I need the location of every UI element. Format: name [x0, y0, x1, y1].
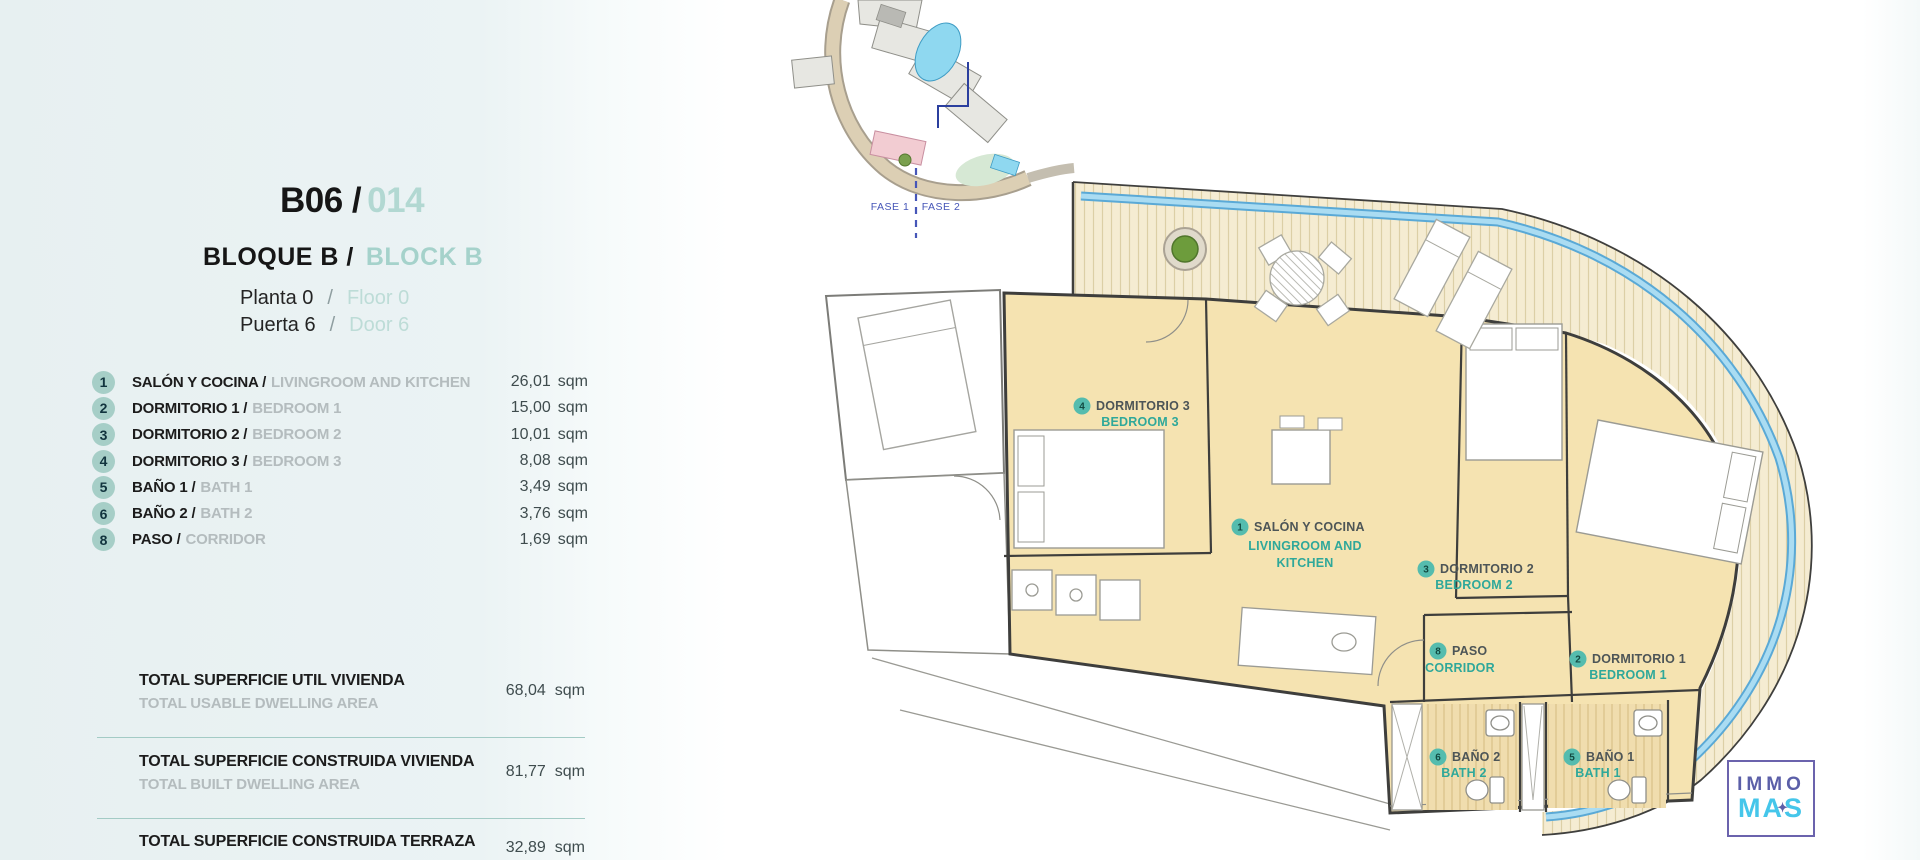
- room-row-bath2: 6 BAÑO 2 /BATH 2 3,76sqm: [92, 500, 588, 526]
- logo-text-mas: MAS: [1738, 793, 1804, 823]
- label-badge-number: 6: [1435, 753, 1441, 764]
- floor-separator: /: [327, 287, 333, 309]
- label-en: BEDROOM 2: [1435, 578, 1513, 592]
- room-area-unit: sqm: [558, 426, 588, 443]
- access-path-edge: [900, 710, 1390, 830]
- room-name-en: BEDROOM 1: [252, 400, 341, 417]
- entry-corridor: [846, 473, 1010, 654]
- label-badge-number: 2: [1575, 655, 1581, 666]
- total-title-en: TOTAL BUILT DWELLING AREA: [139, 776, 474, 793]
- label-en: BEDROOM 1: [1589, 668, 1667, 682]
- terrace-planter: [1164, 228, 1206, 270]
- room-name-en: LIVINGROOM AND KITCHEN: [271, 374, 470, 391]
- total-value: 32,89: [506, 839, 546, 856]
- bedroom3-bed: [1014, 430, 1164, 548]
- label-en: CORRIDOR: [1425, 661, 1495, 675]
- total-terrace-area: TOTAL SUPERFICIE CONSTRUIDA TERRAZA 32,8…: [97, 833, 585, 857]
- total-title-es: TOTAL SUPERFICIE UTIL VIVIENDA: [139, 672, 405, 690]
- total-title-es: TOTAL SUPERFICIE CONSTRUIDA TERRAZA: [139, 833, 475, 851]
- floor-line: Planta 0/Floor 0: [240, 287, 409, 310]
- room-area-value: 1,69: [520, 531, 551, 548]
- site-tree: [899, 154, 911, 166]
- room-area-value: 15,00: [511, 399, 551, 416]
- room-name-es: DORMITORIO 3 /: [132, 453, 247, 470]
- total-usable-area: TOTAL SUPERFICIE UTIL VIVIENDA TOTAL USA…: [97, 672, 585, 712]
- room-area-list: 1 SALÓN Y COCINA /LIVINGROOM AND KITCHEN…: [92, 369, 588, 553]
- room-row-bedroom1: 2 DORMITORIO 1 /BEDROOM 1 15,00sqm: [92, 395, 588, 421]
- door-es: Puerta 6: [240, 314, 316, 336]
- room-number-badge: 4: [92, 450, 115, 473]
- label-badge-number: 8: [1435, 647, 1441, 658]
- label-es: BAÑO 2: [1452, 749, 1500, 764]
- room-name-es: DORMITORIO 2 /: [132, 426, 247, 443]
- divider-line: [97, 737, 585, 738]
- door-separator: /: [330, 314, 336, 336]
- label-en: KITCHEN: [1277, 556, 1334, 570]
- room-name-en: BATH 2: [200, 505, 252, 522]
- room-name-en: BEDROOM 2: [252, 426, 341, 443]
- unit-number: 014: [367, 181, 424, 220]
- immomas-logo: IMMO MAS ✦: [1727, 760, 1815, 837]
- floor-plan-drawing: FASE 1 FASE 2: [760, 0, 1920, 860]
- total-title-en: TOTAL USABLE DWELLING AREA: [139, 695, 405, 712]
- room-row-salon: 1 SALÓN Y COCINA /LIVINGROOM AND KITCHEN…: [92, 369, 588, 395]
- label-en: BEDROOM 3: [1101, 415, 1179, 429]
- site-road-extension: [1028, 168, 1074, 178]
- room-area-unit: sqm: [558, 373, 588, 390]
- label-badge-number: 5: [1569, 753, 1575, 764]
- label-badge-number: 3: [1423, 565, 1429, 576]
- label-badge-number: 4: [1079, 402, 1085, 413]
- door-en: Door 6: [349, 314, 409, 336]
- block-es: BLOQUE B /: [203, 243, 354, 271]
- room-name-es: SALÓN Y COCINA /: [132, 374, 266, 391]
- label-es: PASO: [1452, 644, 1487, 658]
- room-number-badge: 2: [92, 397, 115, 420]
- room-row-bedroom3: 4 DORMITORIO 3 /BEDROOM 3 8,08sqm: [92, 448, 588, 474]
- room-name-en: BATH 1: [200, 479, 252, 496]
- label-es: BAÑO 1: [1586, 749, 1634, 764]
- room-area-unit: sqm: [558, 531, 588, 548]
- unit-title: B06 /014: [280, 181, 424, 221]
- room-name-es: DORMITORIO 1 /: [132, 400, 247, 417]
- room-number-badge: 1: [92, 371, 115, 394]
- total-unit: sqm: [555, 839, 585, 856]
- room-name-es: BAÑO 1 /: [132, 479, 195, 496]
- room-area-value: 3,49: [520, 478, 551, 495]
- room-number-badge: 6: [92, 502, 115, 525]
- brochure-page: B06 /014 BLOQUE B /BLOCK B Planta 0/Floo…: [0, 0, 1920, 860]
- total-built-area: TOTAL SUPERFICIE CONSTRUIDA VIVIENDA TOT…: [97, 753, 585, 793]
- room-area-unit: sqm: [558, 478, 588, 495]
- room-area-unit: sqm: [558, 505, 588, 522]
- total-unit: sqm: [555, 763, 585, 780]
- label-badge-number: 1: [1237, 523, 1243, 534]
- label-es: SALÓN Y COCINA: [1254, 519, 1365, 534]
- room-area-value: 10,01: [511, 426, 551, 443]
- total-title-es: TOTAL SUPERFICIE CONSTRUIDA VIVIENDA: [139, 753, 474, 771]
- room-name-es: PASO /: [132, 531, 181, 548]
- shower-middle: [1522, 704, 1544, 810]
- room-number-badge: 8: [92, 528, 115, 551]
- room-row-bedroom2: 3 DORMITORIO 2 /BEDROOM 2 10,01sqm: [92, 422, 588, 448]
- phase1-label: FASE 1: [871, 201, 910, 213]
- room-number-badge: 3: [92, 423, 115, 446]
- total-unit: sqm: [555, 682, 585, 699]
- room-row-corridor: 8 PASO /CORRIDOR 1,69sqm: [92, 527, 588, 553]
- label-en: LIVINGROOM AND: [1248, 539, 1361, 553]
- total-value: 68,04: [506, 682, 546, 699]
- logo-mark-icon: ✦: [1777, 794, 1790, 821]
- site-plan: FASE 1 FASE 2: [792, 0, 1074, 238]
- room-area-unit: sqm: [558, 452, 588, 469]
- room-area-unit: sqm: [558, 399, 588, 416]
- phase2-label: FASE 2: [922, 201, 961, 213]
- door-line: Puerta 6/Door 6: [240, 314, 409, 337]
- total-value: 81,77: [506, 763, 546, 780]
- room-area-value: 26,01: [511, 373, 551, 390]
- label-en: BATH 1: [1575, 766, 1620, 780]
- block-title: BLOQUE B /BLOCK B: [203, 243, 483, 272]
- room-number-badge: 5: [92, 476, 115, 499]
- floor-en: Floor 0: [347, 287, 409, 309]
- label-es: DORMITORIO 1: [1592, 652, 1686, 666]
- shower-left: [1392, 704, 1422, 810]
- bedroom2-bed: [1466, 324, 1562, 460]
- apartment-plan: 4 DORMITORIO 3 BEDROOM 3 1 SALÓN Y COCIN…: [826, 182, 1812, 835]
- room-name-es: BAÑO 2 /: [132, 505, 195, 522]
- logo-text-immo: IMMO: [1737, 775, 1805, 795]
- label-en: BATH 2: [1441, 766, 1486, 780]
- room-name-en: CORRIDOR: [186, 531, 266, 548]
- unit-code: B06 /: [280, 181, 361, 220]
- block-en: BLOCK B: [366, 243, 483, 271]
- label-es: DORMITORIO 3: [1096, 399, 1190, 413]
- room-name-en: BEDROOM 3: [252, 453, 341, 470]
- divider-line: [97, 818, 585, 819]
- floor-es: Planta 0: [240, 287, 313, 309]
- room-area-value: 8,08: [520, 452, 551, 469]
- room-area-value: 3,76: [520, 505, 551, 522]
- room-row-bath1: 5 BAÑO 1 /BATH 1 3,49sqm: [92, 474, 588, 500]
- label-es: DORMITORIO 2: [1440, 562, 1534, 576]
